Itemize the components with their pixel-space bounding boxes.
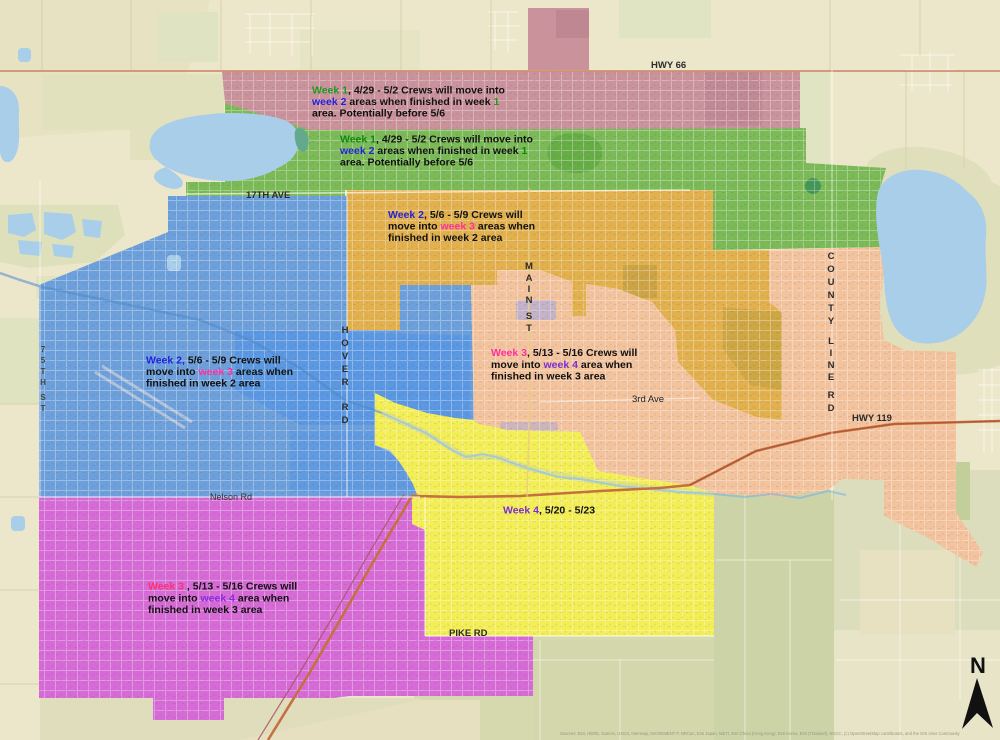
svg-text:finished in week 3 area: finished in week 3 area: [491, 371, 606, 383]
svg-text:R: R: [828, 390, 835, 401]
svg-text:Week 3 , 5/13 - 5/16 Crews wil: Week 3 , 5/13 - 5/16 Crews will: [148, 581, 297, 593]
svg-text:finished in week 3 area: finished in week 3 area: [148, 604, 263, 616]
svg-text:E: E: [342, 364, 348, 375]
svg-text:T: T: [828, 303, 834, 314]
svg-text:D: D: [342, 415, 349, 426]
svg-text:O: O: [827, 264, 834, 275]
svg-text:move into week 3 areas when: move into week 3 areas when: [388, 221, 535, 233]
svg-text:move into week 4 area when: move into week 4 area when: [148, 593, 289, 605]
svg-text:week 2 areas when finished in: week 2 areas when finished in week 1: [311, 96, 500, 108]
svg-text:finished in week 2 area: finished in week 2 area: [388, 232, 503, 244]
svg-text:T: T: [41, 367, 46, 376]
svg-text:Week 4, 5/20 - 5/23: Week 4, 5/20 - 5/23: [503, 505, 595, 517]
svg-text:area. Potentially before 5/6: area. Potentially before 5/6: [312, 108, 445, 120]
svg-text:3rd Ave: 3rd Ave: [632, 394, 664, 405]
svg-text:Week 2, 5/6 - 5/9 Crews will: Week 2, 5/6 - 5/9 Crews will: [388, 209, 523, 221]
svg-text:T: T: [41, 404, 46, 413]
svg-text:R: R: [342, 402, 349, 413]
svg-text:HWY 119: HWY 119: [852, 413, 892, 424]
svg-text:H: H: [40, 378, 46, 387]
svg-text:area. Potentially before 5/6: area. Potentially before 5/6: [340, 157, 473, 169]
svg-text:Nelson Rd: Nelson Rd: [210, 492, 252, 502]
svg-text:S: S: [40, 393, 46, 402]
svg-text:Sources: Esri, HERE, Garmin, U: Sources: Esri, HERE, Garmin, USGS, Inter…: [560, 731, 961, 736]
svg-text:U: U: [828, 277, 835, 288]
svg-text:D: D: [828, 403, 835, 414]
svg-text:Week 3, 5/13 - 5/16 Crews will: Week 3, 5/13 - 5/16 Crews will: [491, 347, 637, 359]
svg-text:N: N: [970, 653, 986, 678]
svg-text:H: H: [342, 325, 349, 336]
svg-text:Week 2, 5/6 - 5/9 Crews will: Week 2, 5/6 - 5/9 Crews will: [146, 355, 281, 367]
svg-text:O: O: [341, 338, 348, 349]
svg-text:V: V: [342, 351, 349, 362]
svg-text:7: 7: [41, 345, 46, 354]
svg-text:S: S: [526, 311, 532, 322]
svg-text:N: N: [526, 295, 533, 306]
svg-text:N: N: [828, 290, 835, 301]
svg-text:week 2 areas when finished in: week 2 areas when finished in week 1: [339, 145, 528, 157]
svg-text:C: C: [828, 251, 835, 262]
svg-text:E: E: [828, 372, 834, 383]
svg-text:T: T: [526, 323, 532, 334]
svg-text:Week 1, 4/29 - 5/2 Crews will: Week 1, 4/29 - 5/2 Crews will move into: [312, 85, 505, 97]
svg-text:N: N: [828, 360, 835, 371]
svg-text:A: A: [526, 273, 533, 284]
svg-text:Week 1, 4/29 - 5/2 Crews will: Week 1, 4/29 - 5/2 Crews will move into: [340, 134, 533, 146]
svg-text:move into week 3 areas when: move into week 3 areas when: [146, 366, 293, 378]
svg-text:move into week 4 area when: move into week 4 area when: [491, 359, 632, 371]
svg-text:R: R: [342, 377, 349, 388]
svg-text:PIKE RD: PIKE RD: [449, 628, 488, 639]
svg-text:I: I: [528, 284, 531, 295]
svg-text:17TH AVE: 17TH AVE: [246, 190, 290, 201]
svg-text:I: I: [830, 348, 833, 359]
svg-text:L: L: [828, 336, 834, 347]
svg-text:finished in week 2 area: finished in week 2 area: [146, 378, 261, 390]
svg-text:M: M: [525, 261, 533, 272]
svg-text:Y: Y: [828, 316, 835, 327]
svg-text:5: 5: [41, 356, 46, 365]
svg-text:HWY 66: HWY 66: [651, 60, 686, 71]
